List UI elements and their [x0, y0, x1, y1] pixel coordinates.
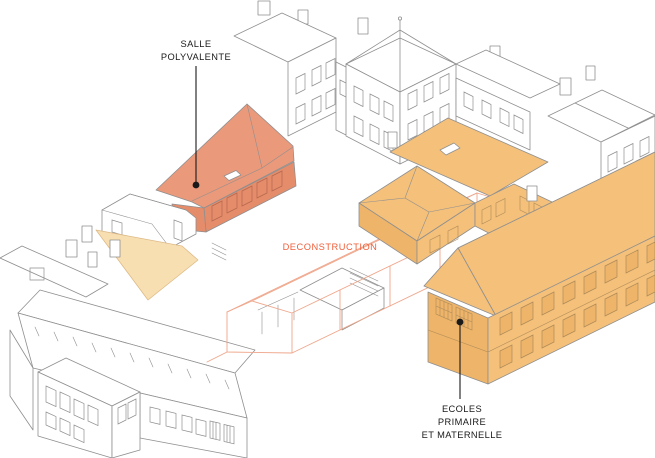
- canopy-chimney: [110, 240, 120, 257]
- west-pavilion-chimney: [258, 1, 270, 15]
- east-pavilion-chimney: [586, 66, 595, 80]
- ecoles-label-line1: ECOLES: [442, 404, 482, 414]
- hip-building-chimney: [388, 132, 397, 148]
- ecoles-label-line3: ET MATERNELLE: [422, 430, 503, 440]
- pavilion-chimney: [358, 18, 368, 34]
- entry-steps: [212, 243, 226, 260]
- gymnasium-building: [0, 240, 384, 458]
- ecoles-roof-chimney: [527, 186, 537, 201]
- ecoles-leader-dot: [457, 319, 464, 326]
- east-pavilion-chimney: [560, 78, 571, 95]
- deconstruction-label: DECONSTRUCTION: [283, 242, 378, 252]
- salle-polyvalente-label-line1: SALLE: [181, 39, 212, 49]
- gym-chimney: [88, 252, 97, 267]
- axonometric-site-diagram: SALLE POLYVALENTE DECONSTRUCTION ECOLES …: [0, 0, 655, 458]
- canopy-chimney: [82, 226, 92, 242]
- ecoles-label-line2: PRIMAIRE: [438, 417, 486, 427]
- ecoles-building: [424, 152, 655, 384]
- salle-leader-dot: [193, 182, 200, 189]
- salle-polyvalente-label-line2: POLYVALENTE: [161, 52, 231, 62]
- gym-chimney: [66, 240, 77, 257]
- site-drawing: SALLE POLYVALENTE DECONSTRUCTION ECOLES …: [0, 0, 655, 458]
